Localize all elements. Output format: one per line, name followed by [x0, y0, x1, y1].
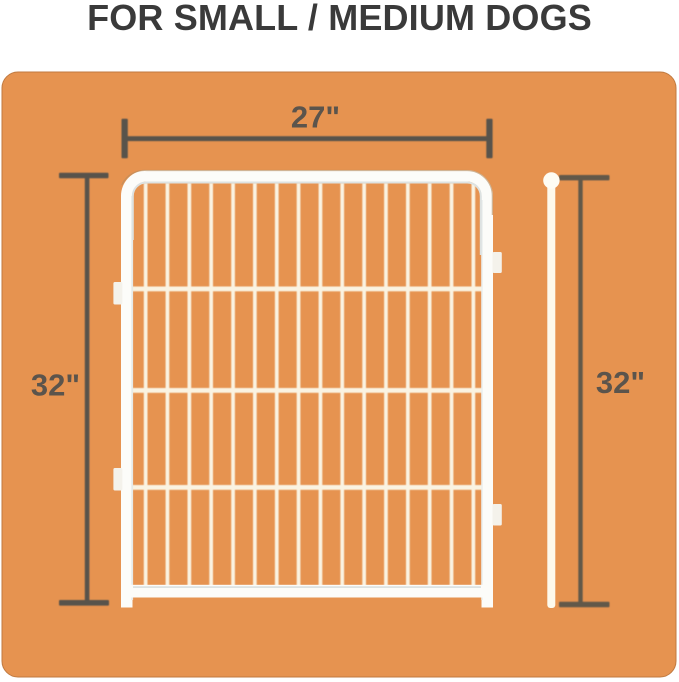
svg-text:27": 27": [291, 100, 340, 135]
svg-text:32": 32": [31, 368, 80, 403]
svg-text:32": 32": [596, 365, 645, 400]
